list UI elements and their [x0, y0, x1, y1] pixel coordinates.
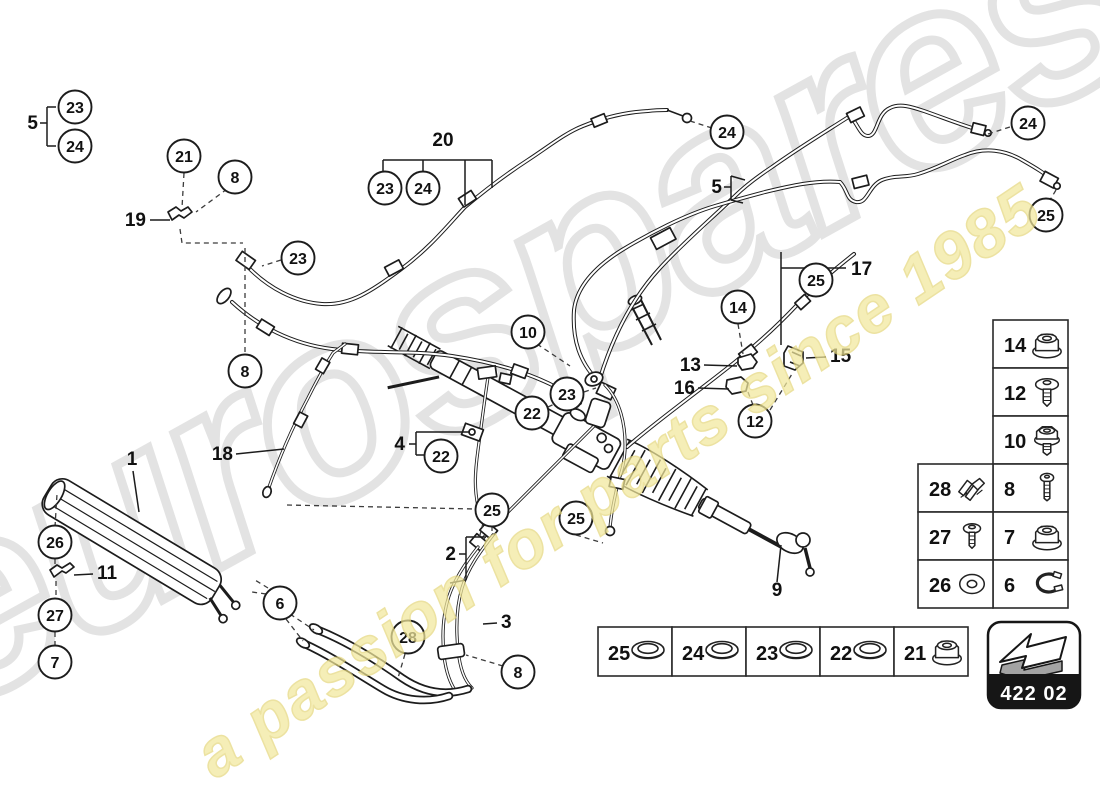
- legend-cell-6[interactable]: 6: [993, 560, 1068, 608]
- legend-num: 14: [1004, 335, 1027, 357]
- legend-num: 10: [1004, 431, 1026, 453]
- callout-24-a[interactable]: 24: [59, 130, 92, 163]
- callout-number: 27: [46, 608, 64, 625]
- legend-cell-7[interactable]: 7: [993, 512, 1068, 560]
- callout-22-b[interactable]: 22: [425, 440, 458, 473]
- strip-cell-22[interactable]: 22: [820, 627, 894, 676]
- callout-number: 26: [46, 535, 64, 552]
- callout-number: 24: [414, 181, 432, 198]
- legend-cell-10[interactable]: 10: [993, 416, 1068, 464]
- legend-cell-27[interactable]: 27: [918, 512, 993, 560]
- callout-number: 22: [432, 449, 450, 466]
- label-18: 18: [212, 444, 233, 465]
- callout-21[interactable]: 21: [168, 140, 201, 173]
- callout-number: 10: [519, 325, 537, 342]
- callout-number: 6: [276, 596, 285, 613]
- legend-num: 22: [830, 643, 852, 665]
- label-4: 4: [394, 434, 405, 455]
- callout-8-c[interactable]: 8: [502, 656, 535, 689]
- seal-ring-icon: [632, 642, 664, 659]
- legend-num: 26: [929, 575, 951, 597]
- callout-number: 23: [558, 387, 576, 404]
- legend-bottom-strip: 25 24 23 22 21: [598, 627, 968, 676]
- callout-26[interactable]: 26: [39, 526, 72, 559]
- callout-24-c[interactable]: 24: [711, 116, 744, 149]
- legend-num: 8: [1004, 479, 1015, 501]
- legend-num: 12: [1004, 383, 1026, 405]
- badge-code-text: 422 02: [1000, 683, 1067, 705]
- callout-23-c[interactable]: 23: [369, 172, 402, 205]
- legend-right-table: 14 12 10 8 7 6: [918, 320, 1068, 608]
- strip-cell-25[interactable]: 25: [598, 627, 672, 676]
- label-13: 13: [680, 355, 701, 376]
- label-11: 11: [97, 563, 118, 584]
- callout-number: 7: [51, 655, 60, 672]
- legend-cell-26[interactable]: 26: [918, 560, 993, 608]
- callout-24-b[interactable]: 24: [407, 172, 440, 205]
- label-20: 20: [432, 130, 453, 151]
- legend-cell-28[interactable]: 28: [918, 464, 993, 512]
- callout-8-b[interactable]: 8: [229, 355, 262, 388]
- callout-number: 25: [807, 273, 825, 290]
- legend-cell-14[interactable]: 14: [993, 320, 1068, 368]
- callout-number: 22: [523, 406, 541, 423]
- callout-8-a[interactable]: 8: [219, 161, 252, 194]
- legend-num: 23: [756, 643, 778, 665]
- callout-10[interactable]: 10: [512, 316, 545, 349]
- flange-nut-icon: [1033, 334, 1061, 358]
- washer-icon: [960, 575, 985, 594]
- callout-number: 24: [1019, 116, 1037, 133]
- pipe-clamp: [437, 643, 465, 659]
- label-19: 19: [125, 210, 146, 231]
- label-5-right: 5: [711, 177, 722, 198]
- callout-25-b[interactable]: 25: [800, 264, 833, 297]
- callout-23-d[interactable]: 23: [551, 378, 584, 411]
- legend-num: 25: [608, 643, 630, 665]
- callout-22-a[interactable]: 22: [516, 397, 549, 430]
- seal-ring-icon: [706, 642, 738, 659]
- legend-num: 21: [904, 643, 926, 665]
- legend-num: 27: [929, 527, 951, 549]
- callout-number: 24: [718, 125, 736, 142]
- part-group-badge: 422 02: [988, 622, 1080, 708]
- diagram-canvas: eurospares: [0, 0, 1100, 800]
- label-3: 3: [501, 612, 512, 633]
- strip-cell-24[interactable]: 24: [672, 627, 746, 676]
- callout-number: 8: [241, 364, 250, 381]
- legend-num: 7: [1004, 527, 1015, 549]
- legend-num: 24: [682, 643, 705, 665]
- callout-23-b[interactable]: 23: [282, 242, 315, 275]
- label-5-topleft: 5: [27, 113, 38, 134]
- callout-number: 23: [289, 251, 307, 268]
- callout-number: 8: [514, 665, 523, 682]
- seal-ring-icon: [854, 642, 886, 659]
- legend-num: 6: [1004, 575, 1015, 597]
- seal-ring-icon: [780, 642, 812, 659]
- callout-23-a[interactable]: 23: [59, 91, 92, 124]
- callout-number: 14: [729, 300, 747, 317]
- legend-cell-12[interactable]: 12: [993, 368, 1068, 416]
- strip-cell-23[interactable]: 23: [746, 627, 820, 676]
- callout-24-d[interactable]: 24: [1012, 107, 1045, 140]
- callout-number: 21: [175, 149, 193, 166]
- callout-27[interactable]: 27: [39, 599, 72, 632]
- callout-6[interactable]: 6: [264, 587, 297, 620]
- label-1: 1: [127, 449, 138, 470]
- flange-nut-icon: [933, 641, 962, 665]
- callout-number: 24: [66, 139, 84, 156]
- parts-diagram-page: eurospares: [0, 0, 1100, 800]
- legend-num: 28: [929, 479, 951, 501]
- callout-7[interactable]: 7: [39, 646, 72, 679]
- callout-number: 8: [231, 170, 240, 187]
- clip-19: [168, 207, 192, 220]
- callout-number: 23: [66, 100, 84, 117]
- callout-14[interactable]: 14: [722, 291, 755, 324]
- strip-cell-21[interactable]: 21: [894, 627, 968, 676]
- label-9: 9: [772, 580, 783, 601]
- legend-cell-8[interactable]: 8: [993, 464, 1068, 512]
- flange-nut-icon: [1033, 526, 1061, 550]
- callout-number: 23: [376, 181, 394, 198]
